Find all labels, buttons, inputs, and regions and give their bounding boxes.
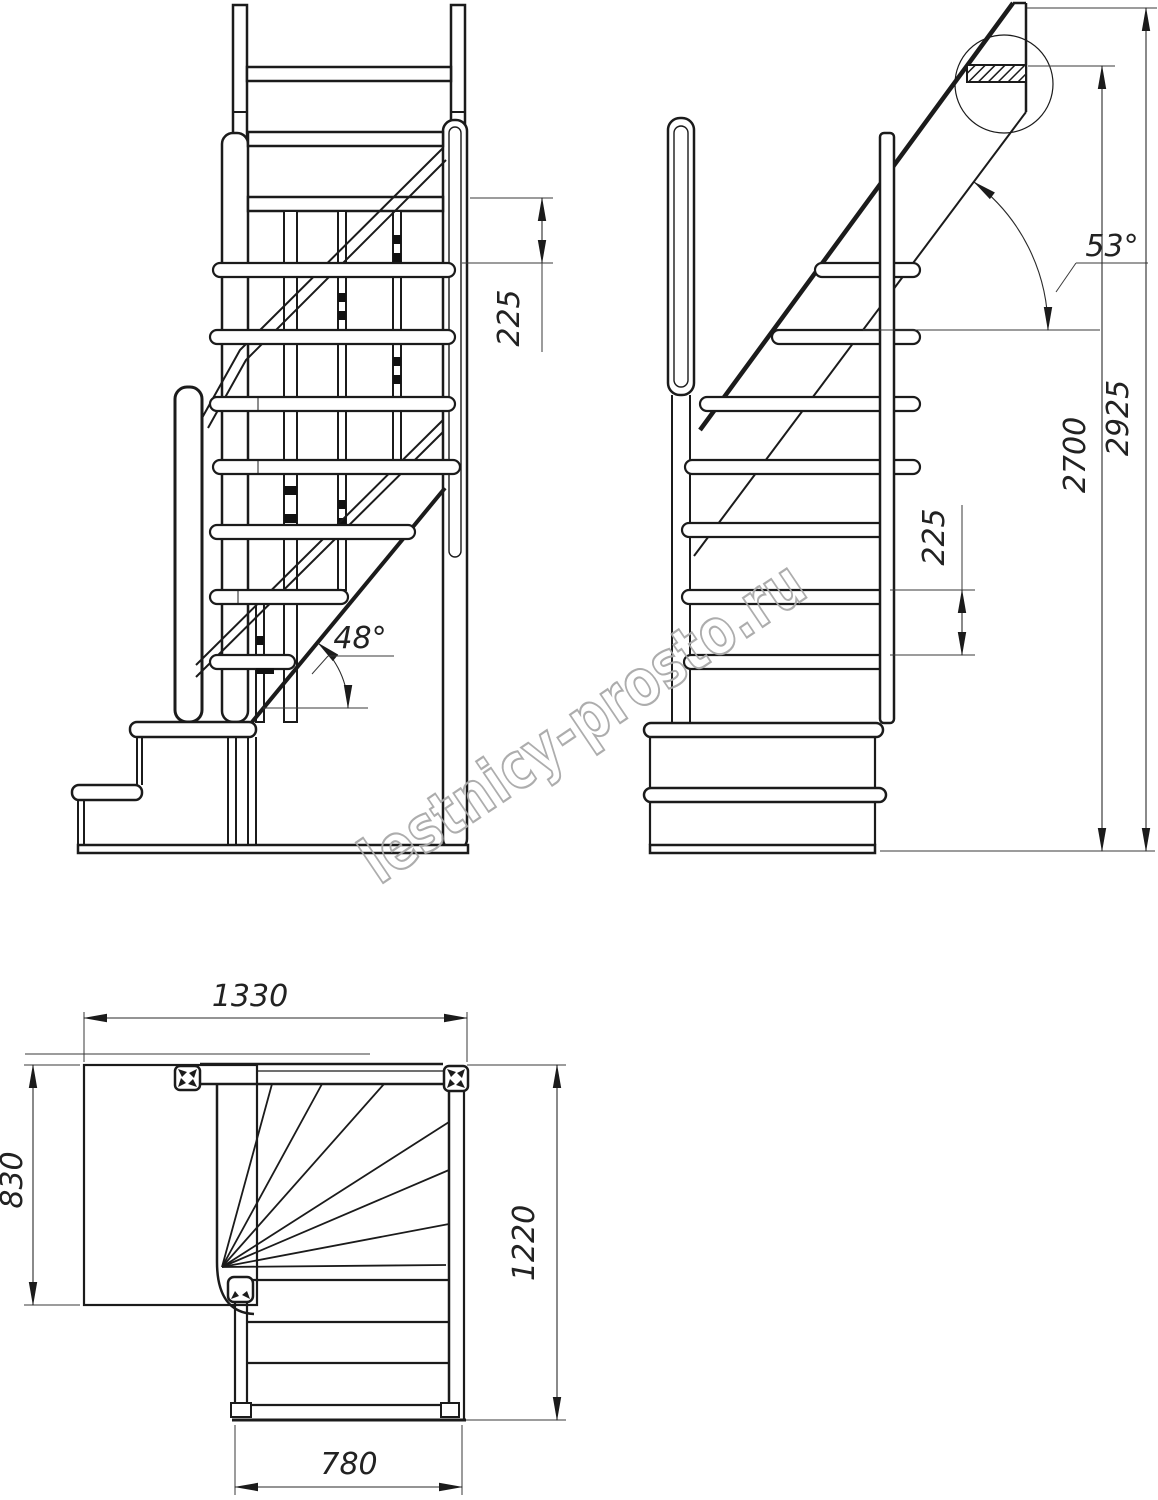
floor-height-dimension: 2700 xyxy=(1028,66,1115,851)
side-angle-label: 53° xyxy=(1085,229,1138,264)
plan-depth-dimension: 830 xyxy=(0,1065,80,1305)
left-railing-post xyxy=(222,133,248,722)
floor-height-label: 2700 xyxy=(1058,417,1093,493)
plan-width-label: 1330 xyxy=(212,979,288,1014)
side-handrail-post xyxy=(668,118,694,395)
side-base xyxy=(644,723,886,853)
upper-landing xyxy=(84,1065,257,1305)
plan-view: 1330 830 1220 780 xyxy=(0,979,566,1495)
front-view: 225 48° xyxy=(72,5,553,853)
right-railing-post xyxy=(443,120,467,850)
straight-flight xyxy=(231,1091,466,1420)
plan-flight-width-label: 780 xyxy=(320,1447,377,1482)
plan-length-dimension: 1220 xyxy=(466,1065,566,1420)
newel-post xyxy=(175,387,202,722)
top-tread-hatched xyxy=(967,65,1026,82)
front-rise-dimension: 225 xyxy=(462,198,553,352)
side-view: 225 53° 2700 2925 xyxy=(644,3,1157,853)
side-rise-label: 225 xyxy=(917,508,952,565)
staircase-drawing: 225 48° xyxy=(0,0,1158,1500)
total-height-label: 2925 xyxy=(1101,380,1136,456)
plan-length-label: 1220 xyxy=(507,1205,542,1281)
plan-flight-width-dimension: 780 xyxy=(235,1425,462,1495)
front-rise-label: 225 xyxy=(492,289,527,346)
drawing-canvas: 225 48° xyxy=(0,0,1158,1500)
front-angle-label: 48° xyxy=(333,621,386,656)
side-angle-annotation: 53° xyxy=(863,182,1148,330)
plan-width-dimension: 1330 xyxy=(84,979,467,1062)
side-rise-dimension: 225 xyxy=(890,505,975,655)
side-center-post xyxy=(880,133,894,723)
detail-circle xyxy=(955,35,1053,133)
plan-depth-label: 830 xyxy=(0,1151,30,1208)
